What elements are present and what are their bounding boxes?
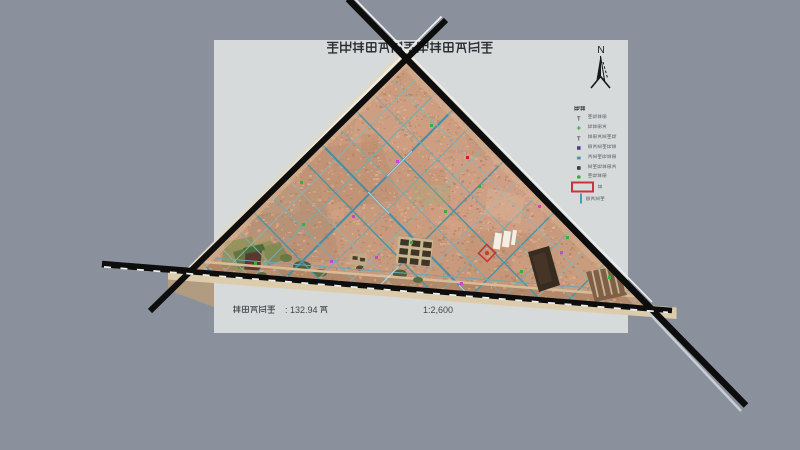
svg-text:N: N <box>597 44 605 56</box>
svg-text:1:2,600: 1:2,600 <box>423 305 453 315</box>
svg-text:: 132.94: : 132.94 <box>285 305 318 315</box>
